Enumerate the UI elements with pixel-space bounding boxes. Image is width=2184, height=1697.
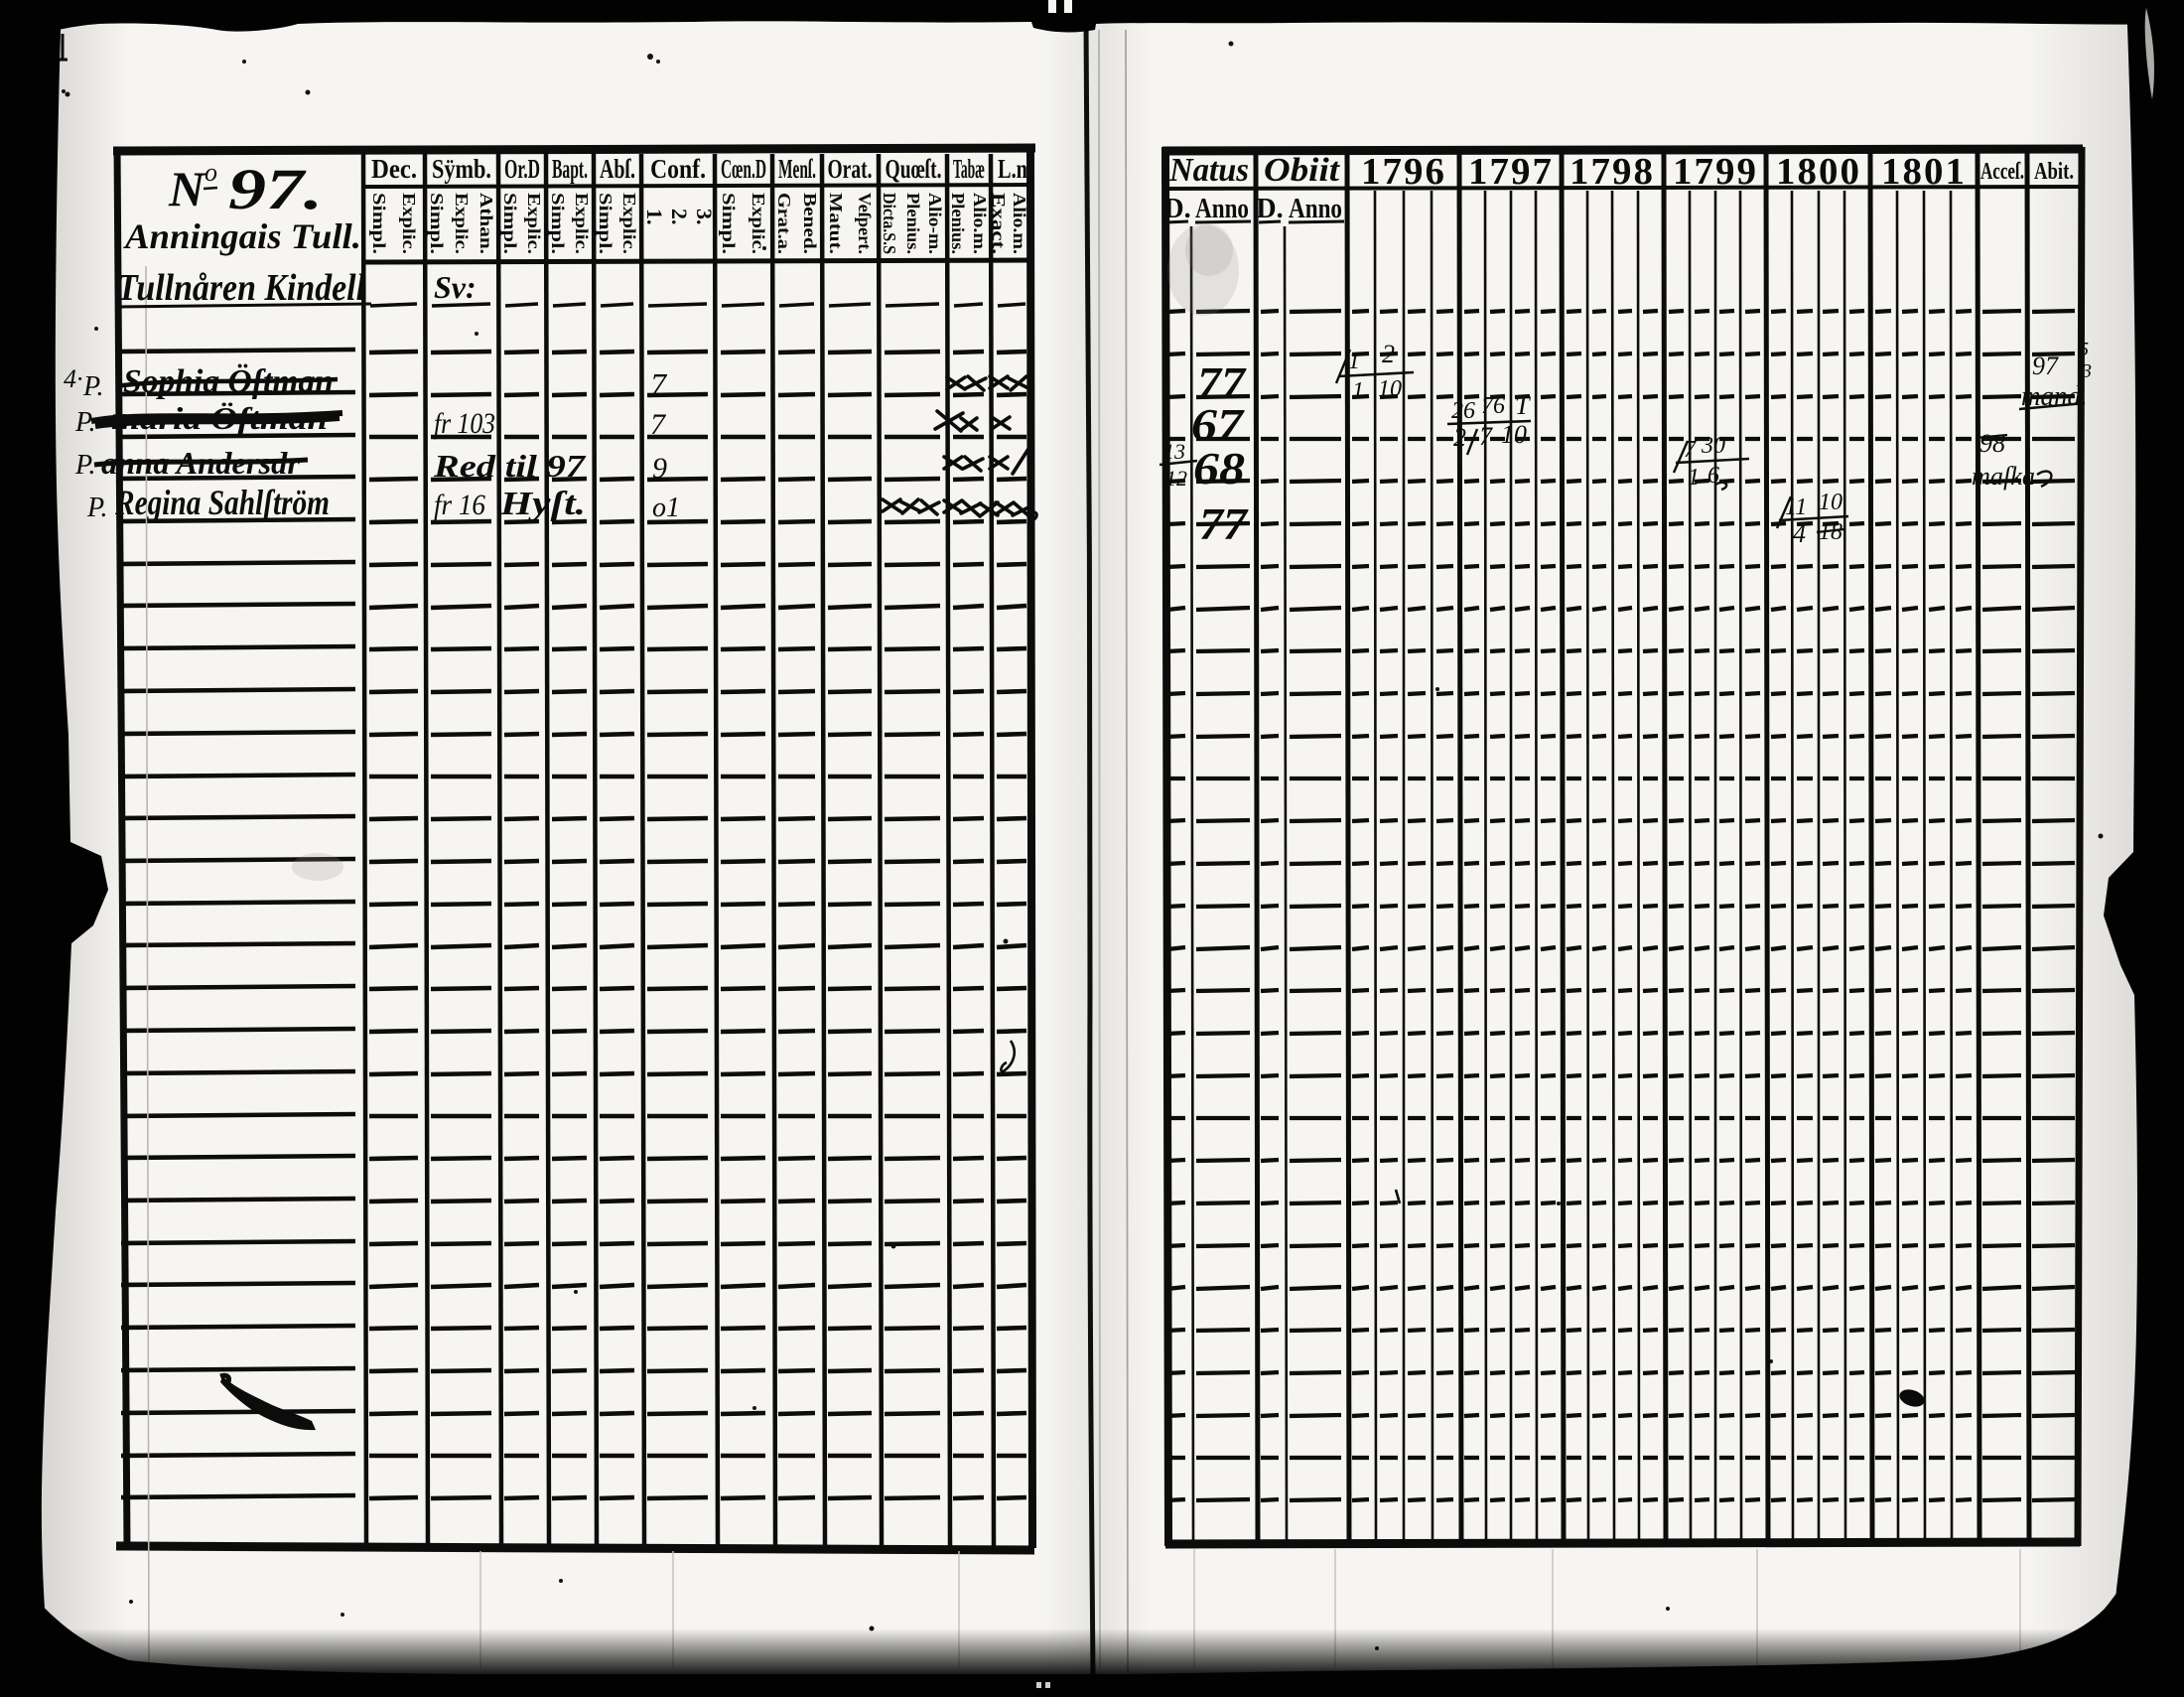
svg-text:Anningais Tull.: Anningais Tull. <box>123 216 361 256</box>
svg-text:Plenius.: Plenius. <box>948 193 968 254</box>
svg-text:1801: 1801 <box>1881 151 1967 193</box>
svg-text:Grat.a.: Grat.a. <box>774 193 794 254</box>
svg-text:Hyſt.: Hyſt. <box>499 486 586 522</box>
svg-text:Simpl.: Simpl. <box>596 193 615 254</box>
svg-text:12: 12 <box>1165 466 1187 491</box>
svg-text:Veſpert.: Veſpert. <box>855 193 875 254</box>
svg-text:Alio.m.: Alio.m. <box>970 193 990 254</box>
svg-text:Explic.: Explic. <box>524 193 544 254</box>
svg-text:maſka: maſka <box>1972 462 2035 491</box>
svg-text:fr 103: fr 103 <box>434 407 495 440</box>
svg-text:Menſ.: Menſ. <box>778 154 816 184</box>
svg-text:Exact.: Exact. <box>989 193 1009 254</box>
svg-text:Explic.: Explic. <box>749 193 768 254</box>
svg-text:7: 7 <box>1684 437 1697 463</box>
svg-text:P.: P. <box>82 371 104 402</box>
svg-text:Anno: Anno <box>1289 194 1342 224</box>
svg-text:o: o <box>205 158 217 187</box>
svg-text:Acceſ.: Acceſ. <box>1980 159 2024 185</box>
svg-text:10: 10 <box>1501 420 1527 449</box>
svg-text:Dicta.S.S: Dicta.S.S <box>880 193 899 254</box>
svg-text:Explic.: Explic. <box>619 193 639 254</box>
svg-text:D.: D. <box>1163 194 1190 224</box>
svg-text:Simpl.: Simpl. <box>427 193 447 254</box>
svg-text:Regina Sahlſtröm: Regina Sahlſtröm <box>114 483 330 522</box>
svg-text:1: 1 <box>1688 465 1700 491</box>
svg-text:7: 7 <box>650 366 668 402</box>
svg-text:Red til 97: Red til 97 <box>433 448 588 484</box>
svg-text:9: 9 <box>652 452 667 485</box>
svg-text:Bapt.: Bapt. <box>552 154 588 184</box>
svg-text:2: 2 <box>1382 340 1395 368</box>
svg-text:1796: 1796 <box>1361 151 1446 193</box>
svg-text:68: 68 <box>1193 443 1245 494</box>
svg-text:Simpl.: Simpl. <box>719 193 739 254</box>
svg-text:Matut.: Matut. <box>826 193 846 254</box>
svg-text:Dec.: Dec. <box>371 154 417 184</box>
svg-text:77: 77 <box>1199 498 1249 549</box>
svg-text:P.: P. <box>86 493 108 523</box>
svg-text:D.: D. <box>1256 194 1283 224</box>
svg-text:Tullnåren Kindell: Tullnåren Kindell <box>117 267 365 309</box>
svg-text:1.: 1. <box>642 209 667 225</box>
svg-text:13: 13 <box>1163 439 1185 464</box>
svg-text:Plenius.: Plenius. <box>903 193 923 254</box>
svg-text:3: 3 <box>2081 360 2092 382</box>
svg-text:10: 10 <box>1378 376 1402 402</box>
svg-text:5: 5 <box>2079 339 2089 360</box>
svg-text:Explic.: Explic. <box>452 193 472 254</box>
svg-text:2.: 2. <box>667 209 692 225</box>
svg-text:10: 10 <box>1819 490 1843 515</box>
svg-text:11: 11 <box>1785 495 1807 520</box>
svg-text:L.n: L.n <box>998 154 1027 184</box>
svg-text:P.: P. <box>74 450 96 481</box>
svg-text:Simpl.: Simpl. <box>500 193 520 254</box>
svg-text:o1: o1 <box>652 493 680 523</box>
svg-text:Or.D: Or.D <box>504 154 540 184</box>
svg-text:7: 7 <box>1479 422 1493 451</box>
svg-text:Explic.: Explic. <box>399 193 419 254</box>
svg-text:Bened.: Bened. <box>800 193 820 254</box>
svg-text:Orat.: Orat. <box>828 154 873 184</box>
svg-text:Anno: Anno <box>1195 194 1249 224</box>
svg-text:1799: 1799 <box>1673 151 1758 193</box>
svg-text:97: 97 <box>2032 352 2059 380</box>
svg-text:Simpl.: Simpl. <box>548 193 568 254</box>
svg-text:Sÿmb.: Sÿmb. <box>432 154 491 184</box>
svg-text:Sv:: Sv: <box>434 269 477 305</box>
svg-text:Abit.: Abit. <box>2034 159 2074 185</box>
svg-text:Cœn.D: Cœn.D <box>721 154 766 184</box>
svg-text:Alio.m.: Alio.m. <box>1010 193 1029 254</box>
svg-text:1800: 1800 <box>1776 151 1861 193</box>
svg-text:Natus: Natus <box>1168 152 1249 189</box>
svg-text:76: 76 <box>1481 393 1505 419</box>
svg-text:26: 26 <box>1451 398 1475 424</box>
svg-text:Alio-m.: Alio-m. <box>925 193 945 254</box>
svg-text:1: 1 <box>1352 378 1364 404</box>
svg-text:3.: 3. <box>692 209 717 225</box>
svg-text:4: 4 <box>1793 519 1806 548</box>
svg-text:97.: 97. <box>228 157 323 221</box>
svg-text:4·: 4· <box>64 364 83 393</box>
svg-text:fr 16: fr 16 <box>434 489 485 521</box>
svg-text:Athan.: Athan. <box>477 193 496 254</box>
svg-text:2: 2 <box>1453 423 1466 452</box>
svg-text:Obiit: Obiit <box>1264 152 1341 189</box>
svg-text:98: 98 <box>1979 429 2005 458</box>
svg-text:1798: 1798 <box>1570 151 1655 193</box>
svg-text:Conf.: Conf. <box>650 154 706 184</box>
svg-text:Tabæ: Tabæ <box>953 154 985 184</box>
svg-text:30: 30 <box>1701 433 1725 459</box>
svg-text:T: T <box>1515 391 1531 420</box>
svg-text:Abſ.: Abſ. <box>600 154 635 184</box>
svg-text:1797: 1797 <box>1468 151 1554 193</box>
svg-text:Quœſt.: Quœſt. <box>886 154 942 184</box>
svg-text:Simpl.: Simpl. <box>369 193 389 254</box>
svg-text:Explic.: Explic. <box>572 193 592 254</box>
svg-text:N: N <box>168 161 206 216</box>
svg-text:7: 7 <box>650 408 667 441</box>
